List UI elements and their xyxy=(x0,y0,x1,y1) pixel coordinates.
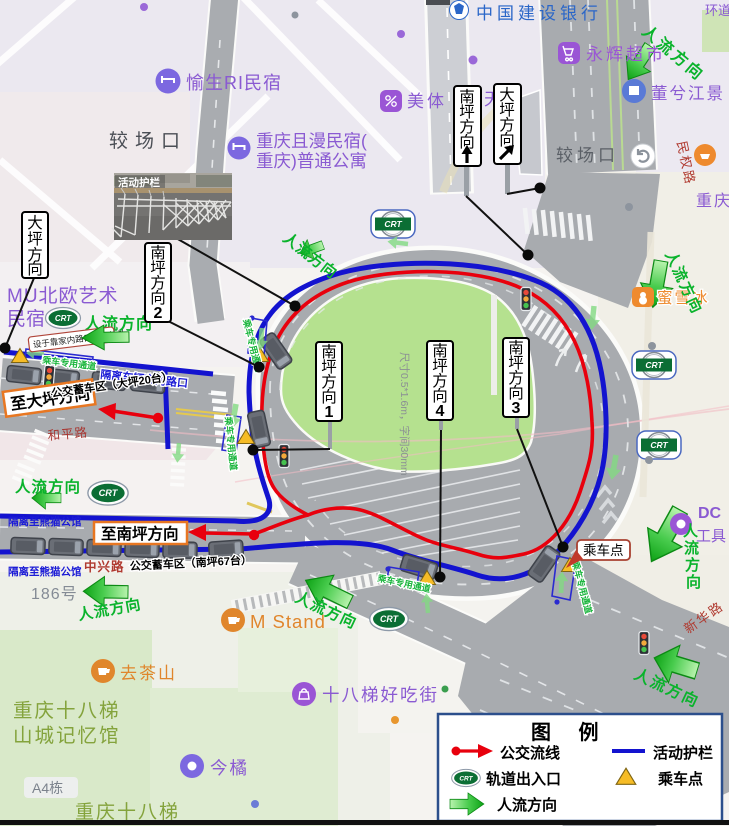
svg-text:公交流线: 公交流线 xyxy=(500,744,560,762)
svg-text:重庆十八梯: 重庆十八梯 xyxy=(13,700,121,722)
svg-text:中国建设银行: 中国建设银行 xyxy=(476,4,602,23)
svg-text:2: 2 xyxy=(154,305,163,322)
svg-text:山城记忆馆: 山城记忆馆 xyxy=(13,725,121,747)
svg-text:较场口: 较场口 xyxy=(109,130,187,152)
svg-text:尺寸0.5*1.6m，字间30mm: 尺寸0.5*1.6m，字间30mm xyxy=(398,352,411,476)
svg-text:乘车点: 乘车点 xyxy=(657,770,703,788)
svg-text:向: 向 xyxy=(686,573,701,591)
svg-text:隔离至熊猫公馆: 隔离至熊猫公馆 xyxy=(8,515,82,528)
svg-text:人流方向: 人流方向 xyxy=(497,796,557,814)
svg-text:A4栋: A4栋 xyxy=(32,780,63,796)
svg-text:活动护栏: 活动护栏 xyxy=(118,176,160,189)
svg-text:人流方向: 人流方向 xyxy=(15,477,81,496)
svg-text:重庆且漫民宿(: 重庆且漫民宿( xyxy=(256,131,367,151)
svg-text:3: 3 xyxy=(512,400,521,417)
svg-text:中兴路: 中兴路 xyxy=(84,559,125,574)
svg-text:至南坪方向: 至南坪方向 xyxy=(101,524,179,543)
svg-text:董兮江景: 董兮江景 xyxy=(651,84,725,103)
svg-text:美体: 美体 xyxy=(407,92,447,111)
svg-text:186号: 186号 xyxy=(31,585,78,603)
svg-text:方: 方 xyxy=(685,556,700,574)
svg-text:人: 人 xyxy=(683,523,699,540)
svg-text:轨道出入口: 轨道出入口 xyxy=(486,770,561,788)
svg-text:重庆)普通公寓: 重庆)普通公寓 xyxy=(256,151,367,171)
svg-text:民宿: 民宿 xyxy=(7,308,45,330)
svg-text:今橘: 今橘 xyxy=(210,758,249,778)
svg-text:愉生RI民宿: 愉生RI民宿 xyxy=(186,73,282,93)
svg-text:环道: 环道 xyxy=(705,3,729,18)
svg-text:大: 大 xyxy=(27,214,43,232)
svg-text:隔离至熊猫公馆: 隔离至熊猫公馆 xyxy=(8,565,82,578)
svg-text:DC: DC xyxy=(698,505,722,522)
svg-text:重庆十八梯: 重庆十八梯 xyxy=(75,801,180,823)
svg-text:乘车点: 乘车点 xyxy=(583,542,624,558)
svg-text:活动护栏: 活动护栏 xyxy=(653,744,713,762)
svg-text:图 例: 图 例 xyxy=(531,720,610,744)
svg-text:去茶山: 去茶山 xyxy=(120,664,177,683)
svg-text:向: 向 xyxy=(27,260,43,278)
svg-text:较场口: 较场口 xyxy=(556,146,619,165)
svg-text:1: 1 xyxy=(325,404,334,421)
svg-text:工具: 工具 xyxy=(696,528,726,545)
svg-text:十八梯好吃街: 十八梯好吃街 xyxy=(322,685,439,705)
svg-text:重庆: 重庆 xyxy=(696,192,729,210)
svg-text:4: 4 xyxy=(436,403,445,420)
svg-text:坪: 坪 xyxy=(27,230,43,248)
svg-text:流: 流 xyxy=(684,539,699,557)
